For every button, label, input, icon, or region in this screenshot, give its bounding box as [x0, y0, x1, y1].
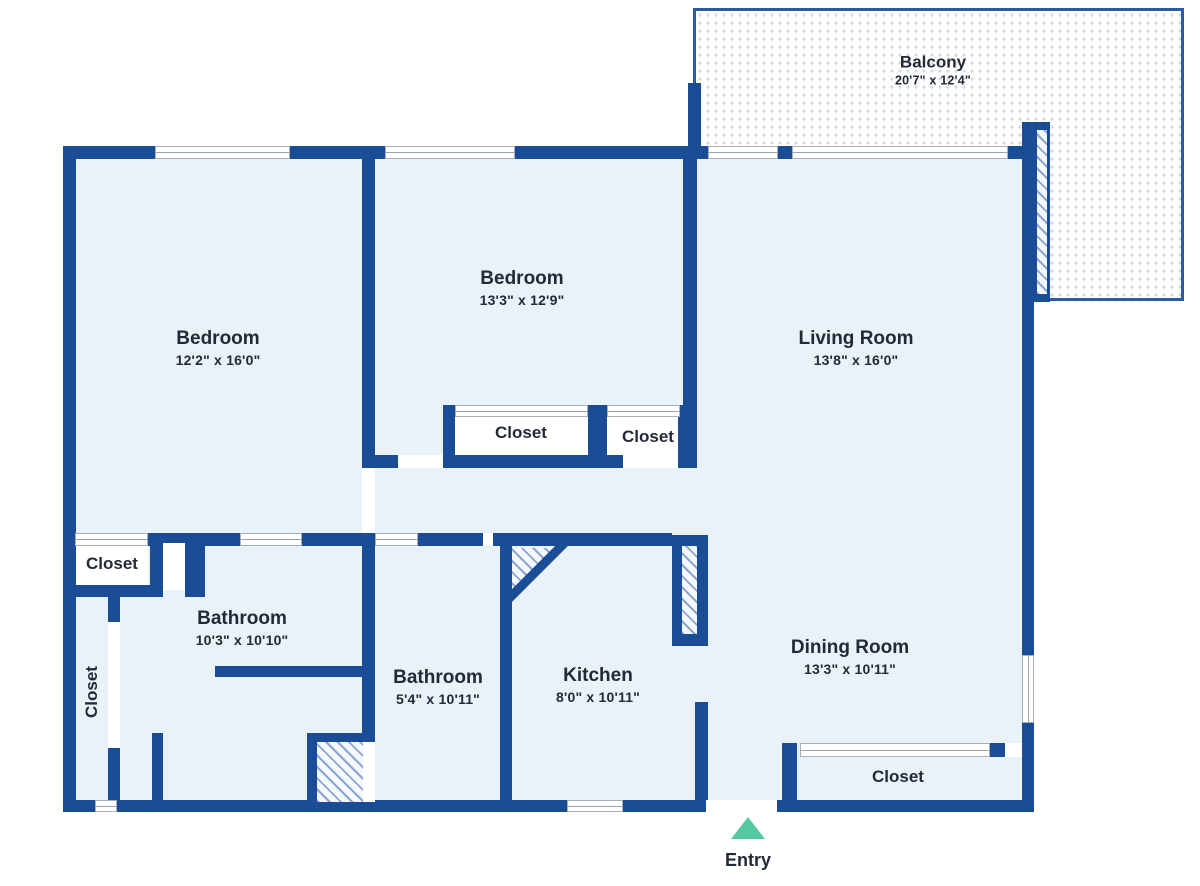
closet-label-closet-strip: Closet	[82, 666, 102, 718]
room-label-balcony: Balcony20'7" x 12'4"	[895, 52, 971, 87]
wall-segment	[695, 702, 708, 812]
room-label-bedroom-middle: Bedroom13'3" x 12'9"	[480, 268, 565, 308]
wall-segment	[63, 585, 163, 597]
wall-segment	[108, 748, 120, 805]
wall-segment	[215, 666, 375, 677]
wall-segment	[1022, 122, 1034, 655]
wall-segment	[990, 743, 1005, 757]
closet-label-closet-hall: Closet	[86, 554, 138, 574]
window	[385, 146, 515, 159]
room-name: Kitchen	[556, 665, 640, 686]
wall-segment	[152, 733, 163, 805]
wall-segment	[678, 455, 697, 468]
closet-label-closet-dining: Closet	[872, 767, 924, 787]
wall-segment	[375, 455, 398, 468]
room-dimensions: 13'3" x 10'11"	[791, 661, 909, 677]
room-label-bedroom-left: Bedroom12'2" x 16'0"	[176, 328, 261, 368]
wall-segment	[63, 146, 155, 159]
window	[375, 533, 418, 546]
wall-segment	[778, 146, 792, 159]
hatched-fixture	[317, 742, 363, 802]
room-dimensions: 20'7" x 12'4"	[895, 74, 971, 88]
wall-segment	[63, 533, 75, 546]
room-dimensions: 13'3" x 12'9"	[480, 292, 565, 308]
room-name: Bedroom	[480, 268, 565, 289]
wall-segment	[63, 800, 95, 812]
door-opening	[706, 800, 777, 812]
wall-segment	[307, 733, 317, 805]
door-opening	[1005, 743, 1022, 757]
room-label-living-room: Living Room13'8" x 16'0"	[798, 328, 913, 368]
door-opening	[362, 468, 375, 533]
wall-segment	[515, 146, 693, 159]
closet-label-closet-bedroom-middle: Closet	[495, 423, 547, 443]
window	[800, 743, 990, 757]
window	[607, 405, 680, 417]
room-label-dining-room: Dining Room13'3" x 10'11"	[791, 637, 909, 677]
door-opening	[108, 622, 120, 748]
room-name: Bedroom	[176, 328, 261, 349]
window	[567, 800, 623, 812]
wall-segment	[362, 146, 375, 468]
wall-segment	[307, 733, 372, 742]
room-dimensions: 12'2" x 16'0"	[176, 352, 261, 368]
wall-segment	[782, 743, 797, 812]
window	[708, 146, 778, 159]
floor-plan: Entry Bedroom12'2" x 16'0"Bedroom13'3" x…	[0, 0, 1200, 886]
entry-arrow-icon	[731, 817, 765, 839]
entry-label: Entry	[725, 850, 771, 871]
door-opening	[363, 742, 375, 802]
wall-segment	[500, 535, 512, 812]
room-name: Bathroom	[393, 667, 483, 688]
wall-segment	[185, 533, 205, 597]
wall-segment	[493, 533, 672, 546]
room-dimensions: 8'0" x 10'11"	[556, 689, 640, 705]
door-opening	[483, 533, 493, 546]
window	[1022, 655, 1034, 723]
door-opening	[623, 455, 678, 468]
door-opening	[163, 543, 185, 590]
room-label-bathroom-second: Bathroom5'4" x 10'11"	[393, 667, 483, 707]
window	[75, 533, 148, 546]
room-name: Bathroom	[196, 608, 289, 629]
window	[155, 146, 290, 159]
wall-segment	[418, 533, 483, 546]
room-name: Balcony	[895, 52, 971, 71]
wall-segment	[777, 800, 1034, 812]
room-name: Living Room	[798, 328, 913, 349]
room-name: Dining Room	[791, 637, 909, 658]
room-dimensions: 5'4" x 10'11"	[393, 691, 483, 707]
balcony-door-hatch	[1037, 130, 1047, 294]
room-dimensions: 13'8" x 16'0"	[798, 352, 913, 368]
room-label-kitchen: Kitchen8'0" x 10'11"	[556, 665, 640, 705]
window	[240, 533, 302, 546]
unit-floor	[63, 146, 1034, 812]
wall-segment	[1022, 723, 1034, 812]
wall-segment	[623, 800, 706, 812]
window	[455, 405, 588, 417]
wall-segment	[443, 455, 623, 468]
hatched-fixture	[682, 546, 697, 634]
wall-segment	[108, 597, 120, 622]
window	[95, 800, 117, 812]
wall-segment	[63, 146, 76, 812]
room-label-bathroom-main: Bathroom10'3" x 10'10"	[196, 608, 289, 648]
closet-label-closet-bedroom-middle-2: Closet	[622, 427, 674, 447]
window	[792, 146, 1008, 159]
room-dimensions: 10'3" x 10'10"	[196, 632, 289, 648]
door-opening	[398, 455, 443, 468]
wall-segment	[362, 533, 375, 742]
